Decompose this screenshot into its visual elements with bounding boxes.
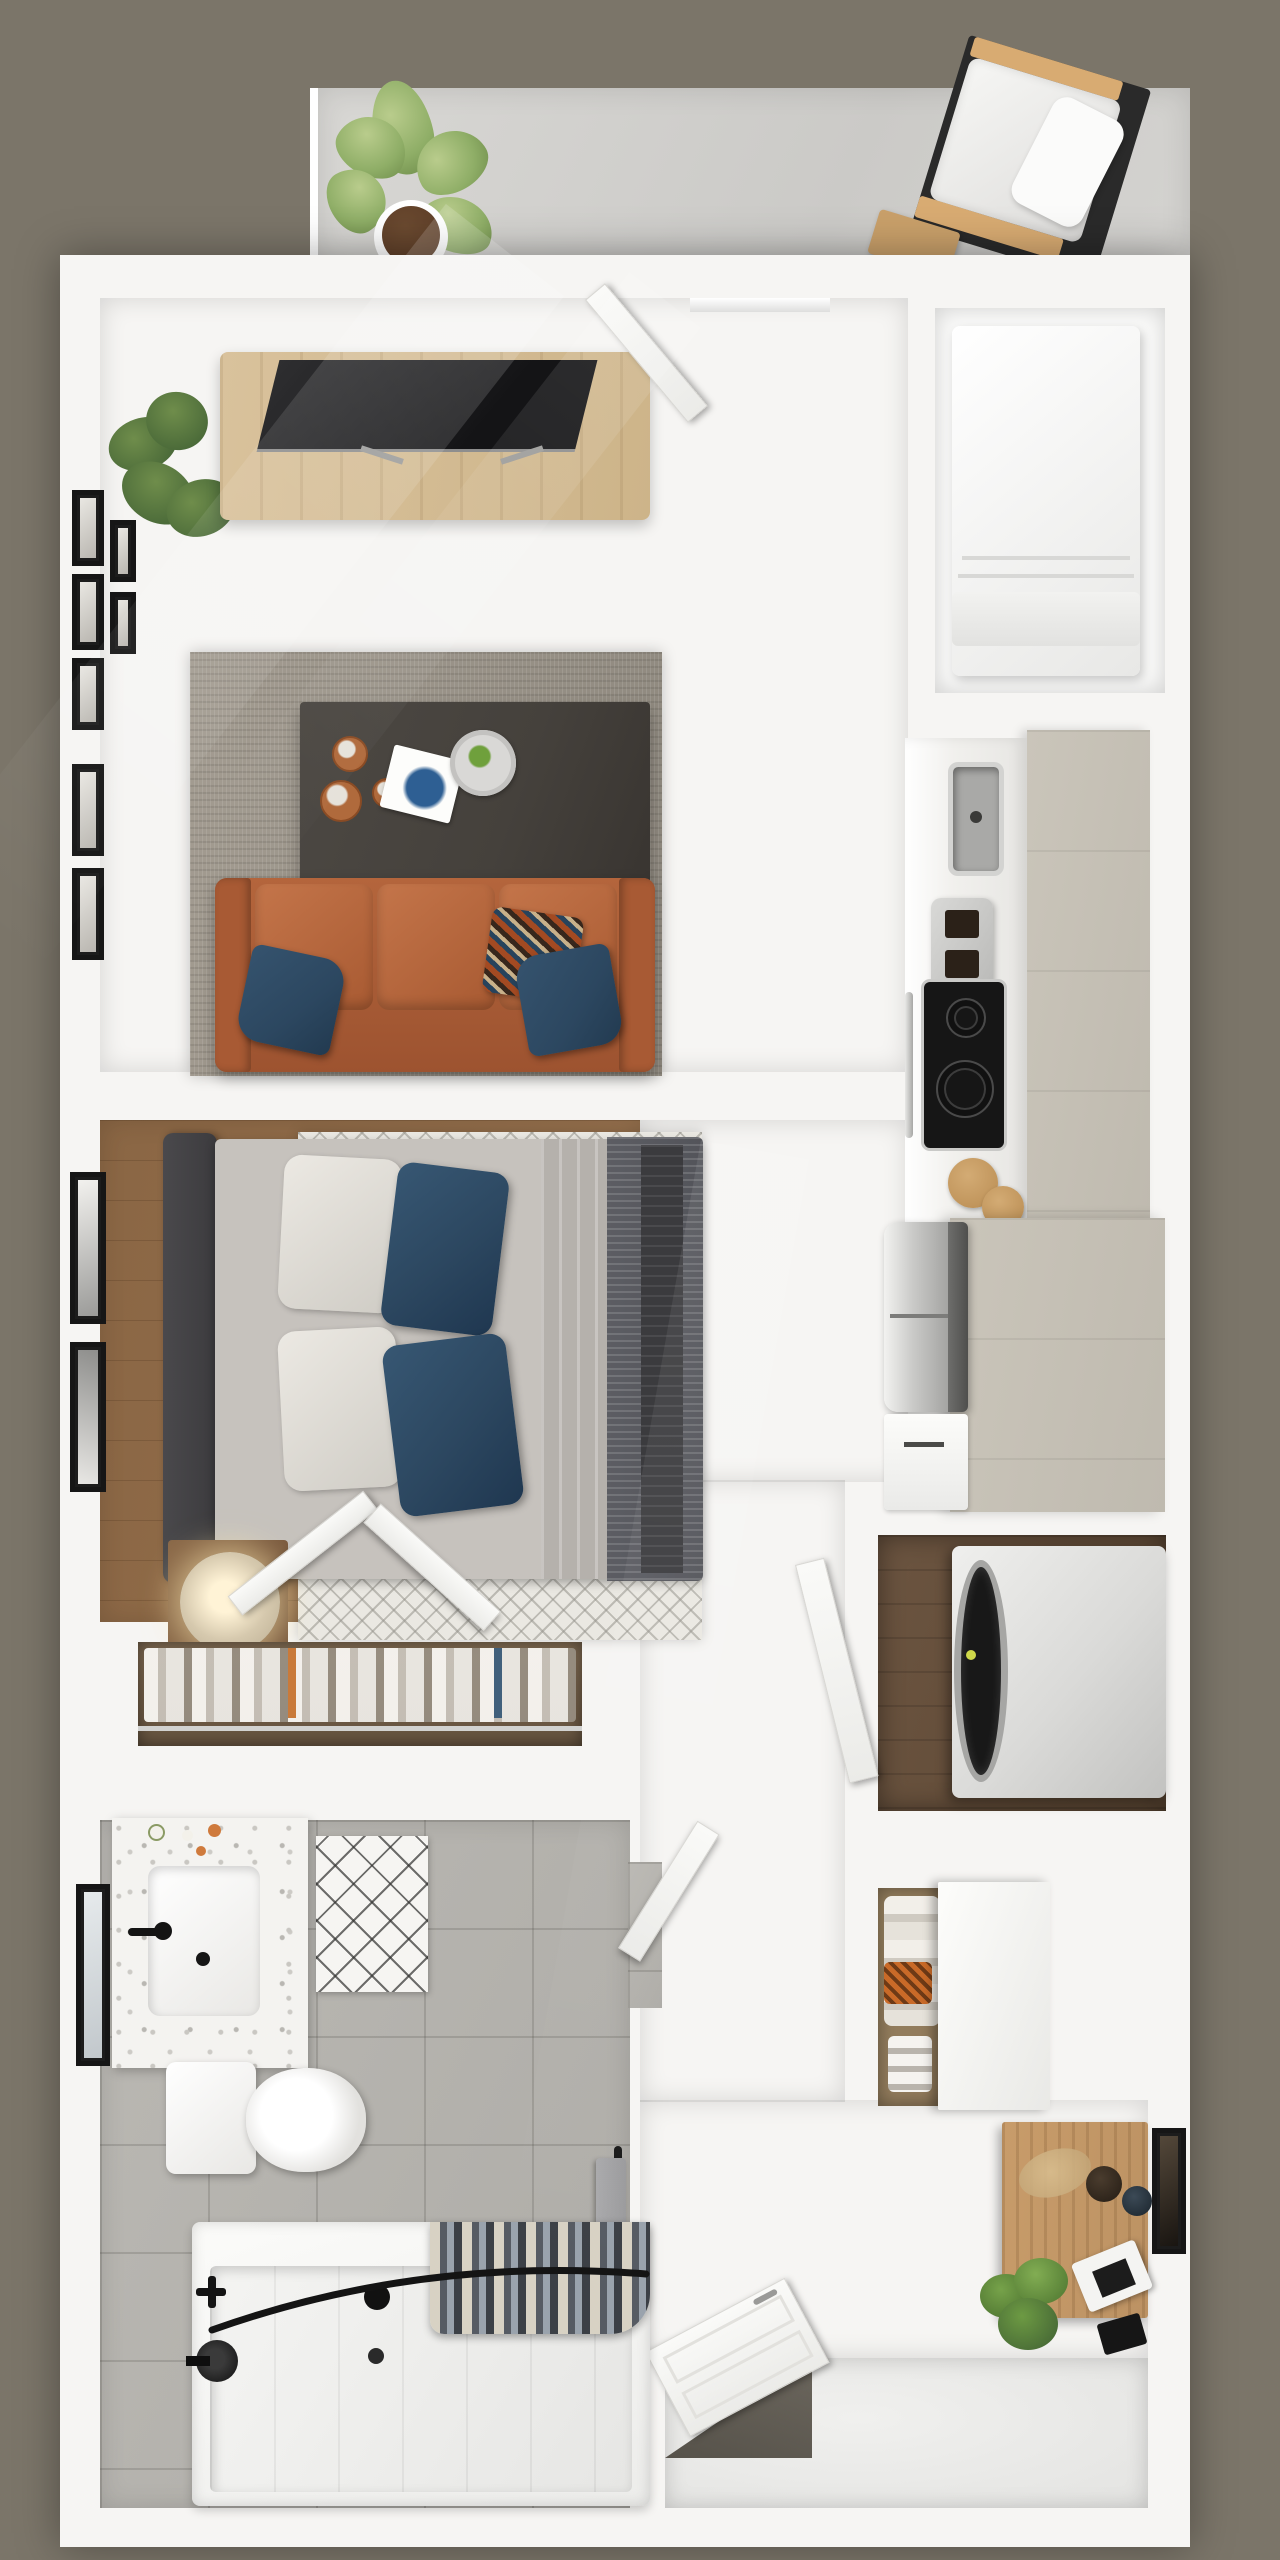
black-faucet-base	[154, 1922, 172, 1940]
vanity-sink	[148, 1866, 260, 2016]
bath-mat	[316, 1836, 428, 1992]
gallery-frame	[72, 764, 104, 856]
washer-dryer	[952, 1546, 1166, 1798]
gallery-frame	[110, 520, 136, 582]
appliance-ridge	[958, 574, 1134, 578]
kitchen-upper-cabinets	[1027, 730, 1150, 1224]
balcony-door-sill	[690, 298, 830, 312]
closet-rail	[138, 1726, 582, 1731]
sink-drain	[196, 1952, 210, 1966]
toilet	[166, 2058, 370, 2180]
bathroom-mirror	[76, 1884, 110, 2066]
cooktop	[924, 982, 1004, 1148]
frame-art	[80, 772, 96, 848]
sofa-pillow-navy	[234, 943, 348, 1057]
flower	[150, 1826, 163, 1839]
flower	[182, 1830, 193, 1841]
washer-door	[954, 1560, 1008, 1782]
frame-art	[80, 582, 96, 642]
frame-art	[1160, 2136, 1178, 2246]
gallery-frame	[72, 658, 104, 730]
flower	[196, 1846, 206, 1856]
bedroom-frame	[70, 1342, 106, 1492]
toaster-slot	[945, 910, 979, 938]
floor-plan-render	[0, 0, 1280, 2560]
sheet-fold	[541, 1139, 613, 1579]
cabinet-drawers	[884, 1414, 968, 1510]
pantry-cabinet	[950, 1218, 1165, 1512]
plant-leaf	[998, 2298, 1058, 2350]
headboard	[163, 1133, 217, 1583]
washer-control	[966, 1650, 976, 1660]
drawer-handle	[904, 1442, 944, 1447]
frame-art	[78, 1180, 98, 1316]
decor-bowl	[1122, 2186, 1152, 2216]
cooktop-burner	[936, 1060, 994, 1118]
pillow-navy	[381, 1332, 525, 1518]
pillow-navy	[379, 1161, 510, 1337]
oven-handle	[905, 992, 913, 1138]
sink-drain	[970, 811, 982, 823]
sofa	[215, 878, 655, 1072]
mirror-glass	[84, 1892, 102, 2058]
toaster-slot	[945, 950, 979, 978]
sofa-cushion	[377, 884, 495, 1010]
hanging-clothes	[884, 1896, 940, 2026]
appliance-front-band	[952, 592, 1140, 646]
decor-bowl	[1086, 2166, 1122, 2202]
copper-mug	[332, 736, 368, 772]
entry-plant	[980, 2258, 1080, 2358]
tv	[257, 360, 598, 452]
plate-with-greens	[450, 730, 516, 796]
fridge	[884, 1222, 968, 1412]
throw-blanket	[641, 1145, 683, 1573]
storage-basket	[884, 1962, 932, 2004]
wardrobe-slot	[138, 1642, 582, 1746]
frame-art	[80, 498, 96, 558]
appliance-ridge	[962, 556, 1130, 560]
gallery-frame	[72, 574, 104, 650]
toilet-tank	[166, 2062, 256, 2174]
cooktop-burner	[946, 998, 986, 1038]
plant-leaf	[1014, 2258, 1068, 2304]
hanging-clothes-row	[144, 1648, 576, 1722]
tub-faucet-handle	[208, 2276, 216, 2308]
toilet-bowl	[246, 2068, 366, 2172]
sofa-armrest	[215, 878, 251, 1072]
frame-art	[118, 600, 128, 646]
pillow-white	[277, 1326, 403, 1492]
flower	[208, 1824, 221, 1837]
copper-mug	[320, 780, 362, 822]
utility-appliance	[952, 326, 1140, 676]
entry-wall-art	[1152, 2128, 1186, 2254]
bed	[163, 1133, 703, 1583]
curtain-rod	[190, 2248, 660, 2358]
gallery-frame	[72, 490, 104, 566]
sofa-pillow-navy	[513, 942, 625, 1057]
shower-arm	[186, 2356, 210, 2366]
clothes-accent	[494, 1648, 502, 1718]
frame-art	[78, 1350, 98, 1484]
balcony-plant	[318, 80, 508, 280]
bedroom-doorway-floor	[490, 1070, 908, 1122]
vanity-counter	[112, 1818, 308, 2068]
frame-art	[118, 528, 128, 574]
closet-sliding-panel	[938, 1882, 1050, 2110]
bedroom-frame	[70, 1172, 106, 1324]
frame-art	[80, 666, 96, 722]
frame-art	[80, 876, 96, 952]
sofa-armrest	[619, 878, 655, 1072]
kitchen-sink	[948, 762, 1004, 876]
clothes-accent	[288, 1648, 296, 1718]
gallery-frame	[72, 868, 104, 960]
gallery-frame	[110, 592, 136, 654]
fridge-gasket	[948, 1222, 968, 1412]
shoes	[888, 2036, 932, 2092]
